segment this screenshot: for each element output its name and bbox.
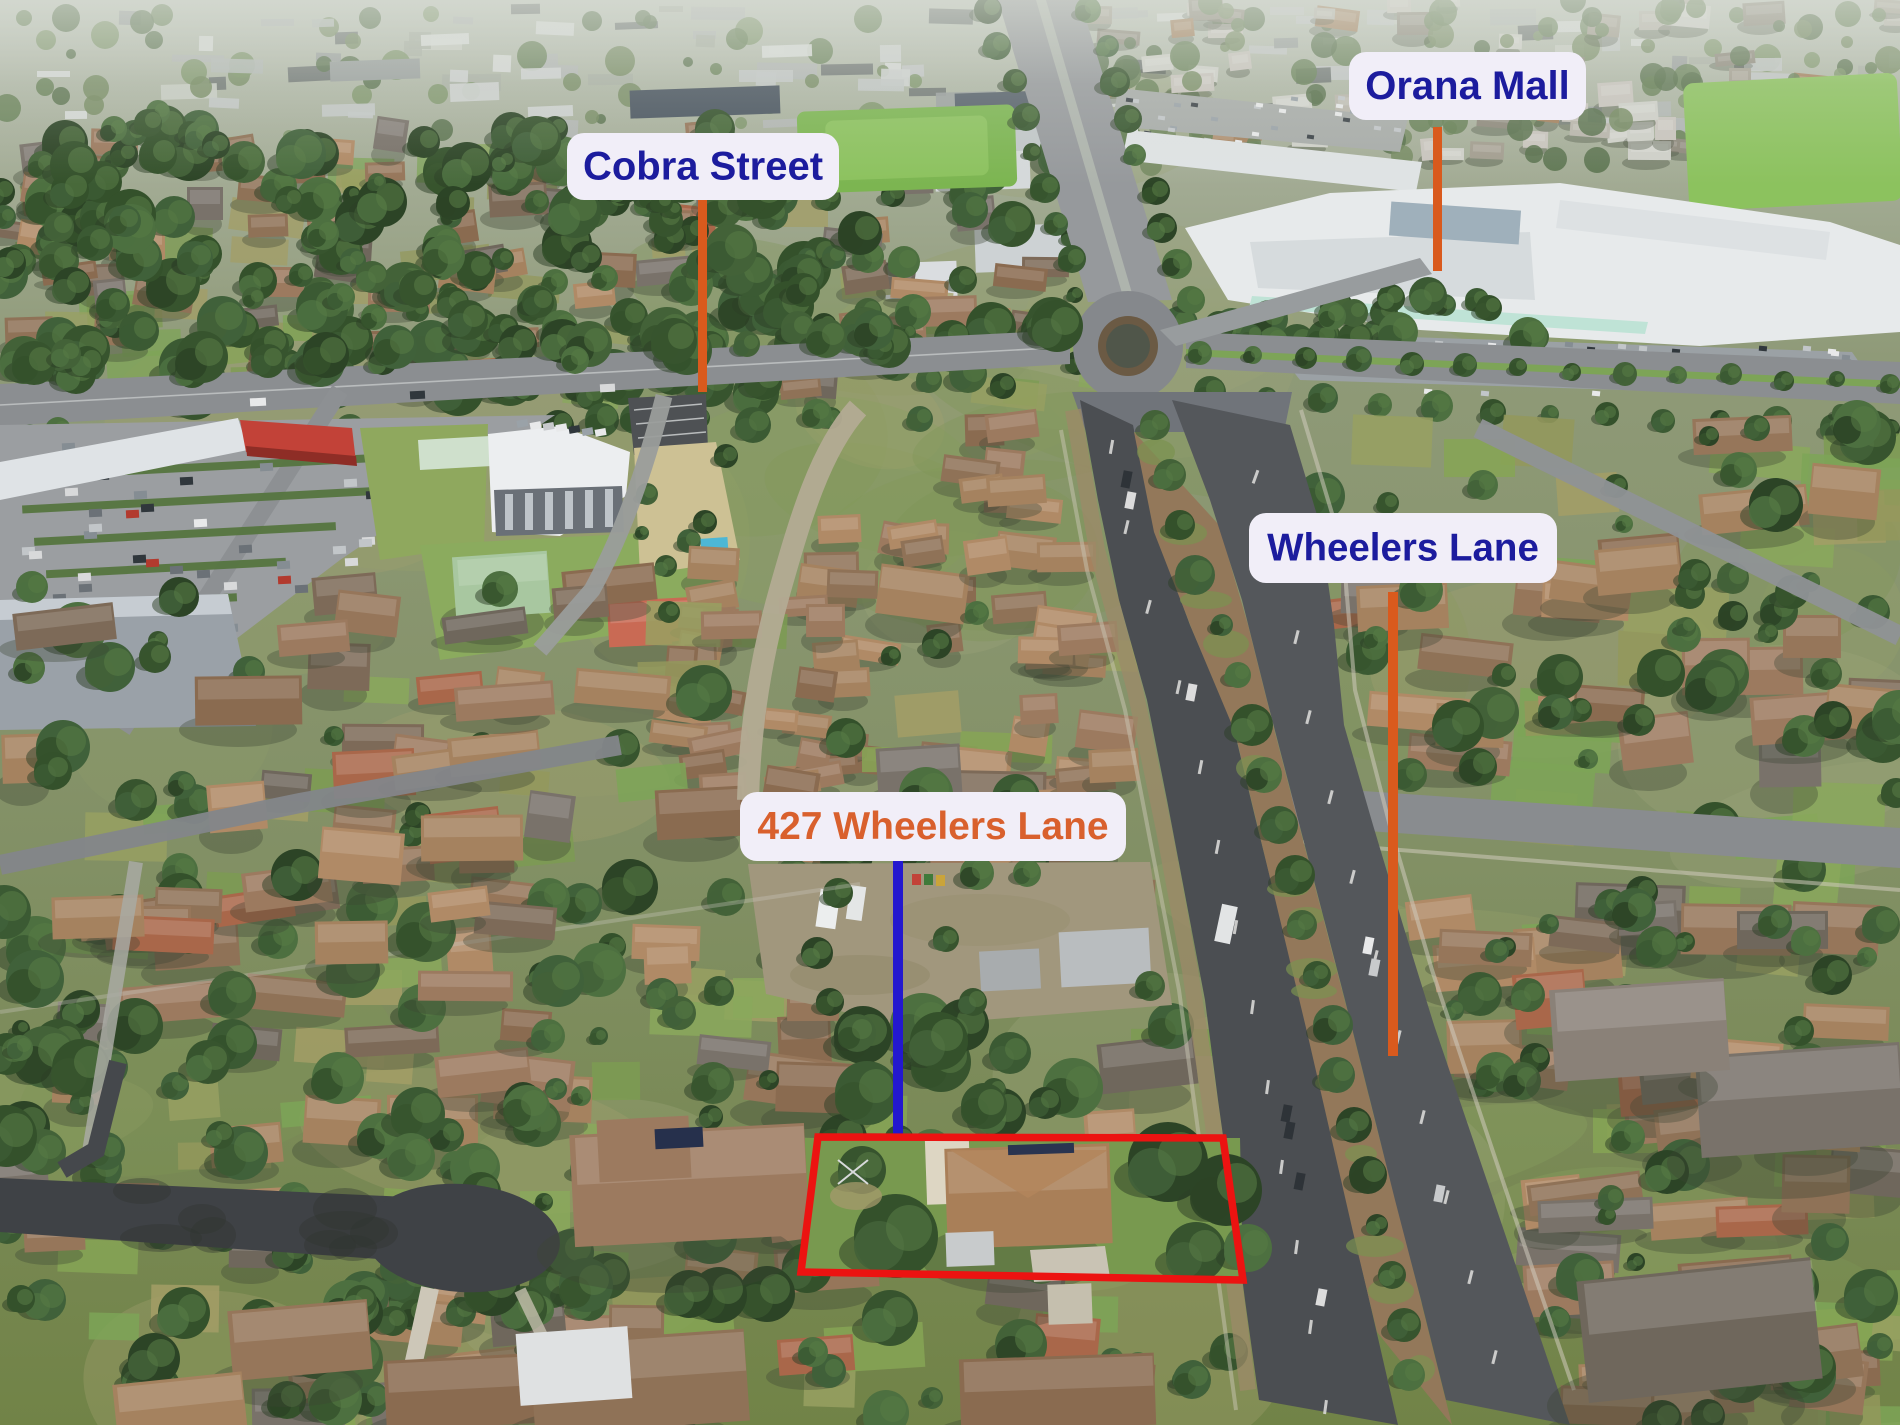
svg-text:Cobra Street: Cobra Street bbox=[583, 145, 823, 189]
svg-text:Orana Mall: Orana Mall bbox=[1365, 64, 1570, 108]
svg-text:Wheelers Lane: Wheelers Lane bbox=[1267, 527, 1539, 570]
svg-text:427 Wheelers Lane: 427 Wheelers Lane bbox=[757, 805, 1108, 848]
